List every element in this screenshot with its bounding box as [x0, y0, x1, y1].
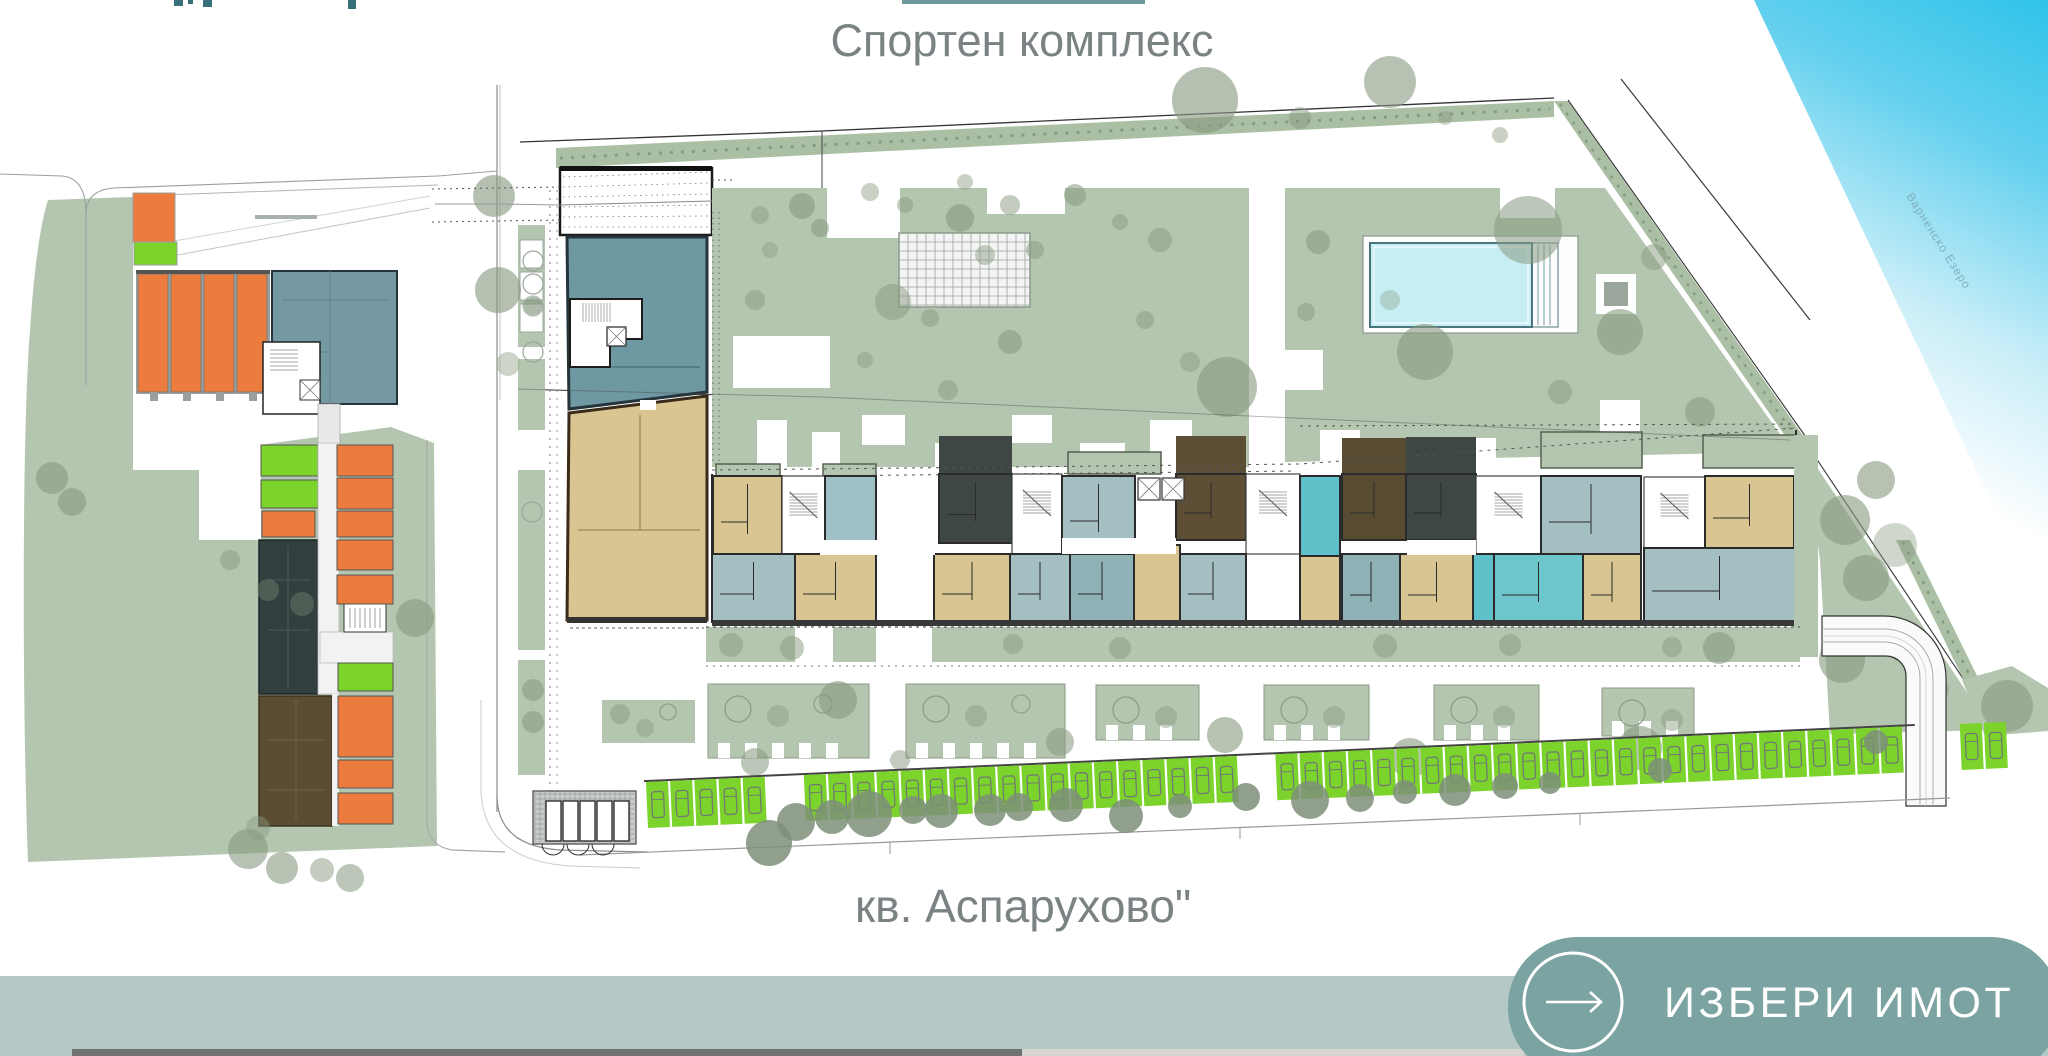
svg-text:ИЗБЕРИ ИМОТ: ИЗБЕРИ ИМОТ	[1664, 979, 2014, 1027]
svg-text:Спортен комплекс: Спортен комплекс	[831, 15, 1214, 66]
svg-text:кв. Аспарухово": кв. Аспарухово"	[855, 880, 1191, 932]
